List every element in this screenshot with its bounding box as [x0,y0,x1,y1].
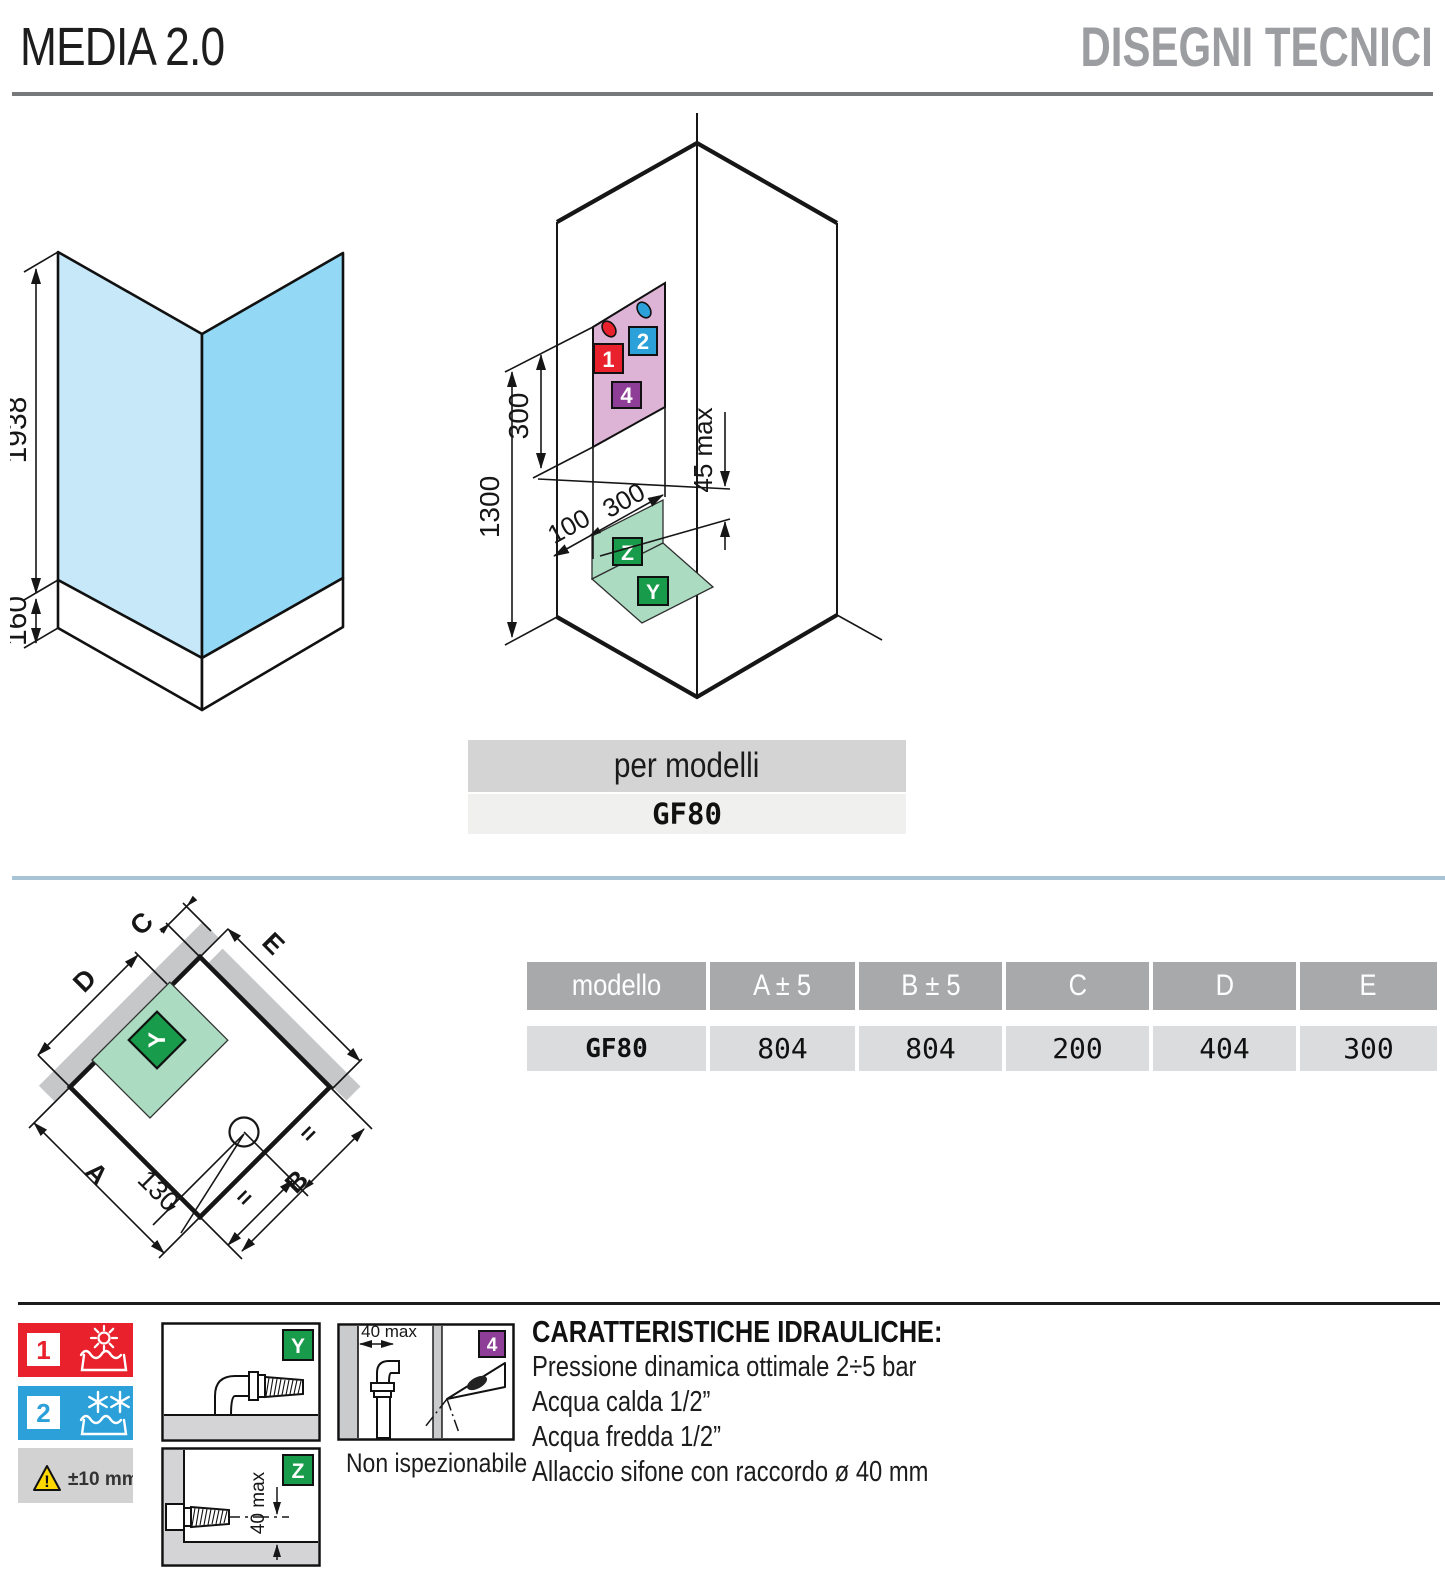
label-b: B [279,1164,314,1199]
label-a: A [79,1156,114,1191]
dim-tray-label: 160 [10,596,33,646]
svg-text:4: 4 [487,1335,498,1356]
legend-hot-water: 1 [18,1323,133,1377]
svg-text:Y: Y [144,1032,171,1048]
col-header-a: A ± 5 [710,962,855,1010]
legend-inspection-detail: 40 max 4 [337,1323,515,1441]
label-c: C [124,906,159,941]
hydraulics-line: Acqua calda 1/2” [532,1385,1437,1420]
hydraulics-line: Pressione dinamica ottimale 2÷5 bar [532,1350,1437,1385]
divider-wall [433,1326,442,1438]
dim-40max-label: 40 max [248,1471,269,1534]
dim-40max-label: 40 max [361,1323,417,1341]
equal-mark-right: = [294,1119,323,1148]
hydraulics-line: Acqua fredda 1/2” [532,1420,1437,1455]
svg-text:Z: Z [292,1460,305,1483]
legend-tolerance: ! ±10 mm [18,1448,133,1503]
hydraulics-block: CARATTERISTICHE IDRAULICHE: Pressione di… [532,1314,1437,1490]
col-header-b: B ± 5 [859,962,1002,1010]
dim-height-label: 1938 [10,397,33,464]
footer-divider [18,1302,1440,1305]
legend-cold-water: 2 [18,1386,133,1440]
model-bar-value: GF80 [468,794,906,834]
col-header-modello: modello [527,962,706,1010]
page-title: MEDIA 2.0 [20,16,269,78]
label-d: D [67,963,102,998]
front-view-drawing: 1938 160 [10,230,370,740]
tolerance-label: ±10 mm [68,1469,133,1490]
label-e: E [256,927,290,961]
dim-300-label: 300 [503,393,534,440]
equal-mark-left: = [230,1183,259,1212]
col-header-e: E [1300,962,1437,1010]
svg-text:Y: Y [646,581,660,604]
col-header-d: D [1153,962,1296,1010]
cell-c: 200 [1006,1026,1149,1071]
marker-z-badge: Z [283,1455,313,1485]
hydraulics-title: CARATTERISTICHE IDRAULICHE: [532,1314,1437,1350]
svg-text:2: 2 [36,1398,50,1428]
section-divider [12,876,1445,880]
svg-text:1: 1 [602,347,614,372]
installation-iso-drawing: 1 2 4 Z Y 300 1300 [480,110,960,742]
marker-2-badge: 2 [629,327,657,355]
svg-text:4: 4 [620,383,633,408]
svg-text:!: ! [44,1472,50,1491]
dim-1300-label: 1300 [480,476,505,538]
marker-4-badge: 4 [612,382,641,408]
top-view-drawing: Y C D E A B 130 = = [15,890,435,1305]
glass-panels [58,252,343,710]
col-header-c: C [1006,962,1149,1010]
model-bar-label: per modelli [468,740,906,792]
marker-4-badge: 4 [479,1331,505,1357]
legend-y-detail: Y [161,1322,321,1442]
marker-y-badge: Y [638,577,668,605]
dim-100-label: 100 [542,502,594,549]
technical-sheet-page: MEDIA 2.0 DISEGNI TECNICI 1938 160 [0,0,1445,1583]
inspection-note: Non ispezionabile [330,1448,522,1479]
cell-a: 804 [710,1026,855,1071]
marker-1-badge: 1 [594,344,623,373]
legend-z-detail: 40 max Z [161,1447,321,1567]
header-divider [12,92,1433,96]
spec-table: modello A ± 5 B ± 5 C D E GF80 804 804 2… [527,962,1437,1071]
svg-text:2: 2 [637,329,649,354]
cell-b: 804 [859,1026,1002,1071]
svg-text:Z: Z [621,542,634,565]
page-subtitle: DISEGNI TECNICI [963,14,1433,79]
svg-text:Y: Y [291,1335,305,1358]
cell-e: 300 [1300,1026,1437,1071]
dim-45max-label: 45 max [688,407,718,492]
hydraulics-line: Allaccio sifone con raccordo ø 40 mm [532,1455,1437,1490]
svg-text:1: 1 [36,1335,50,1365]
corner-walls [505,113,882,697]
marker-y-badge: Y [283,1330,313,1360]
wall-section [340,1326,358,1438]
cell-d: 404 [1153,1026,1296,1071]
cell-model: GF80 [527,1026,706,1071]
